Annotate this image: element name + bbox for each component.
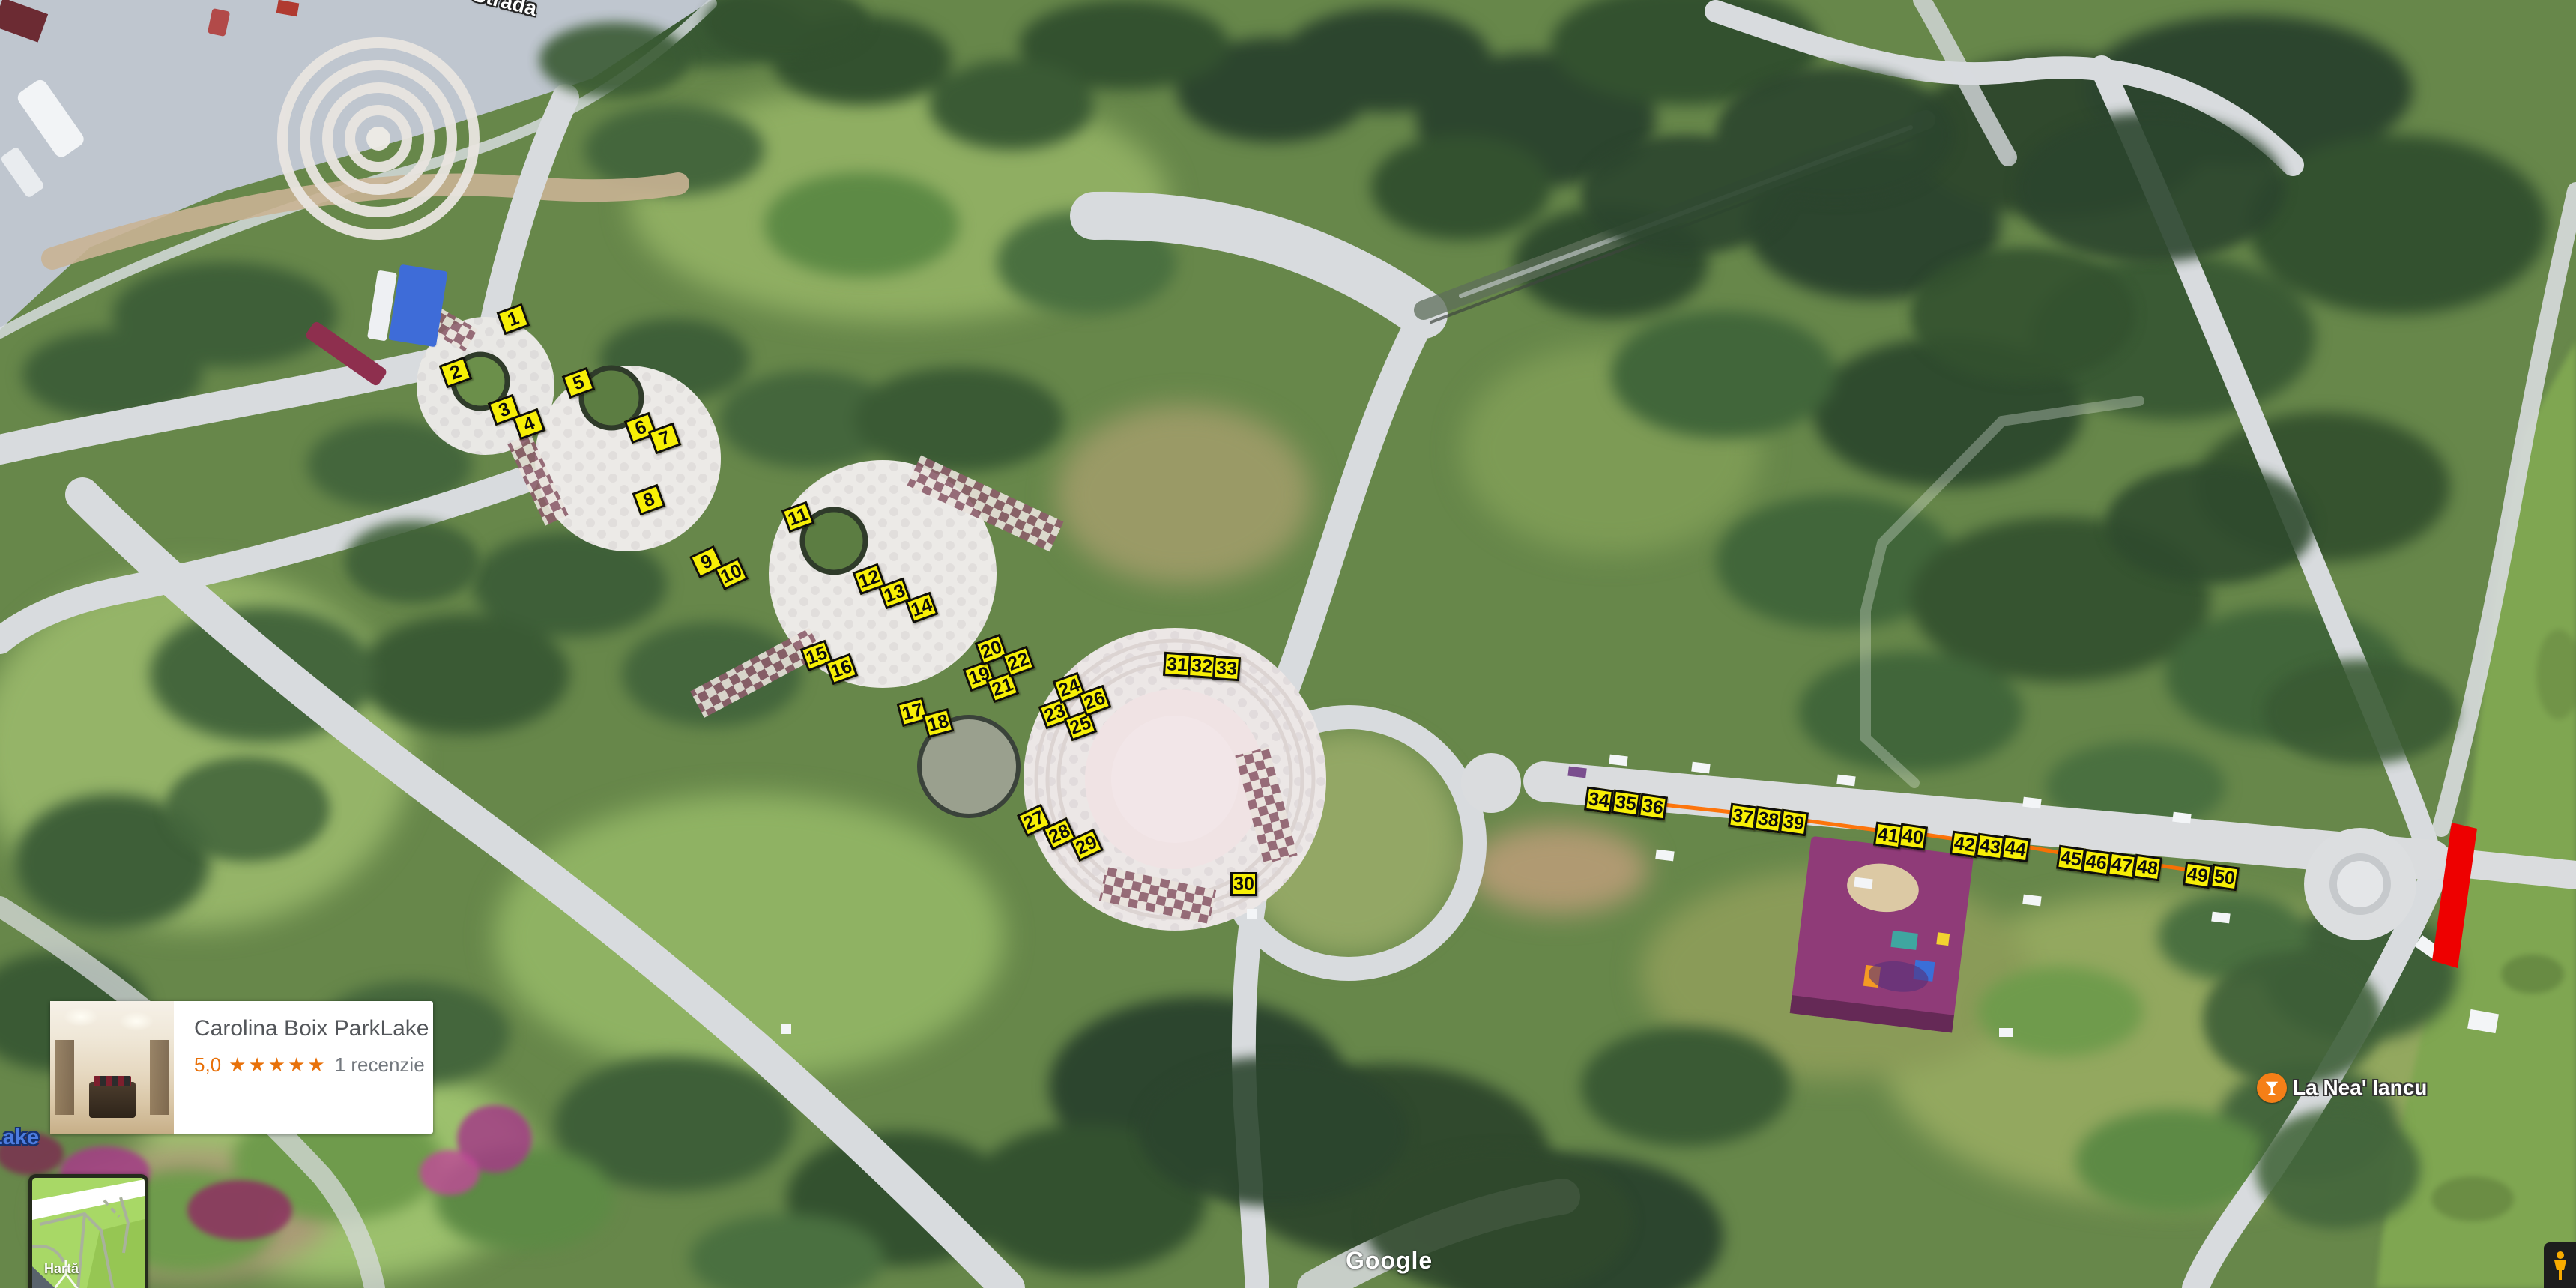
minimap-label: Hartă — [44, 1261, 79, 1277]
satellite-map-canvas[interactable]: 1234567891011121314151617181920212223242… — [0, 0, 2576, 1288]
site-marker-40[interactable]: 40 — [1898, 823, 1928, 851]
google-watermark: Google — [1346, 1247, 1433, 1275]
photo-detail — [64, 1007, 98, 1027]
site-marker-49[interactable]: 49 — [2183, 862, 2213, 889]
site-marker-34[interactable]: 34 — [1584, 787, 1614, 814]
site-marker-39[interactable]: 39 — [1779, 809, 1809, 837]
place-photo[interactable] — [50, 1001, 174, 1134]
site-marker-8[interactable]: 8 — [632, 484, 666, 515]
photo-detail — [94, 1076, 131, 1086]
poi-la-nea-iancu[interactable]: La Nea' Iancu — [2257, 1073, 2427, 1103]
photo-detail — [89, 1082, 136, 1118]
photo-detail — [150, 1040, 169, 1115]
site-marker-30[interactable]: 30 — [1230, 872, 1257, 896]
rating-value: 5,0 — [194, 1053, 221, 1077]
reviews-link[interactable]: 1 recenzie — [335, 1053, 425, 1077]
place-card[interactable]: Carolina Boix ParkLake 5,0 ★★★★★ 1 recen… — [50, 1001, 433, 1134]
lake-poi-label: Lake — [0, 1125, 39, 1150]
site-marker-36[interactable]: 36 — [1638, 793, 1668, 821]
site-marker-1[interactable]: 1 — [497, 303, 530, 335]
site-marker-50[interactable]: 50 — [2210, 864, 2240, 892]
site-marker-2[interactable]: 2 — [439, 357, 473, 388]
poi-name: La Nea' Iancu — [2293, 1076, 2427, 1100]
photo-detail — [55, 1040, 74, 1115]
rating-stars-icon: ★★★★★ — [229, 1053, 327, 1077]
site-marker-44[interactable]: 44 — [2001, 835, 2031, 863]
photo-detail — [119, 1012, 154, 1031]
site-marker-35[interactable]: 35 — [1611, 790, 1641, 817]
map-mode-toggle[interactable]: Hartă — [28, 1174, 148, 1288]
site-marker-33[interactable]: 33 — [1212, 656, 1241, 681]
restaurant-cocktail-icon — [2257, 1073, 2287, 1103]
site-marker-5[interactable]: 5 — [562, 367, 596, 399]
place-title: Carolina Boix ParkLake — [194, 1016, 429, 1041]
site-marker-48[interactable]: 48 — [2132, 854, 2162, 882]
pegman-control[interactable] — [2544, 1242, 2576, 1288]
pegman-icon — [2551, 1251, 2570, 1281]
site-marker-11[interactable]: 11 — [781, 501, 815, 533]
